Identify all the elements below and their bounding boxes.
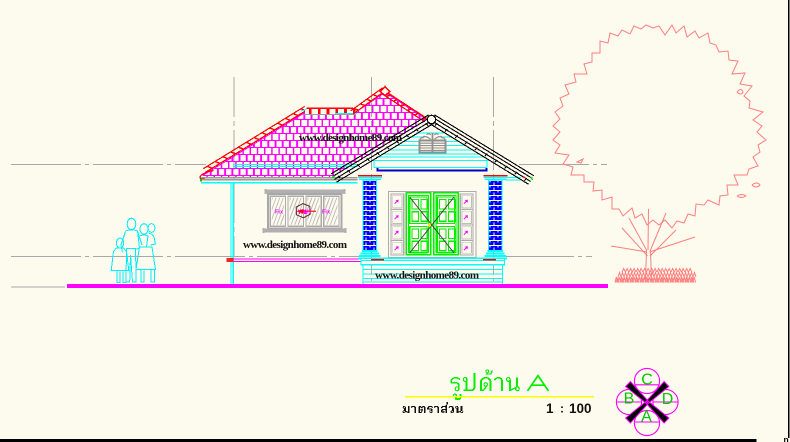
- svg-text:D: D: [662, 391, 674, 408]
- svg-text:A: A: [641, 409, 652, 426]
- svg-text:Fix: Fix: [275, 210, 284, 216]
- svg-text:B: B: [624, 391, 635, 408]
- svg-text:100: 100: [569, 401, 592, 416]
- svg-text:Fix: Fix: [322, 210, 331, 216]
- svg-text:n: n: [784, 435, 789, 442]
- svg-text::: :: [560, 402, 564, 416]
- svg-text:W1: W1: [303, 210, 311, 216]
- svg-text:www.designhome89.com: www.designhome89.com: [375, 270, 479, 282]
- svg-text:www.designhome89.com: www.designhome89.com: [243, 239, 347, 251]
- svg-text:www.designhome89.com: www.designhome89.com: [299, 132, 402, 144]
- svg-text:1: 1: [546, 401, 554, 416]
- svg-text:C: C: [641, 371, 653, 388]
